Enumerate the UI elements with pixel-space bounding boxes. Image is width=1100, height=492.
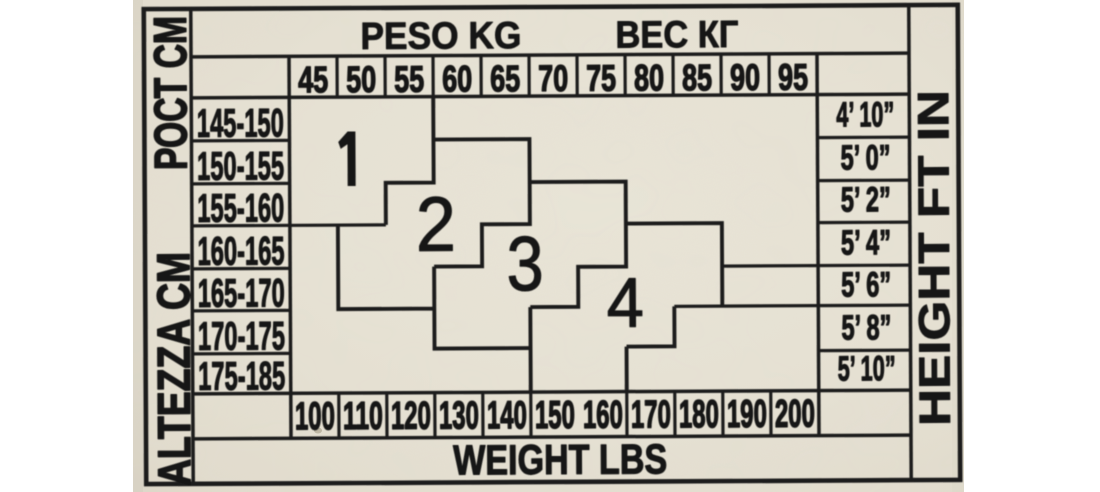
svg-text:70: 70: [538, 58, 568, 99]
svg-text:60: 60: [442, 58, 472, 99]
svg-text:155-160: 155-160: [197, 186, 284, 230]
svg-text:5’ 6”: 5’ 6”: [841, 265, 891, 304]
svg-text:150: 150: [535, 394, 575, 437]
svg-text:PESO KG: PESO KG: [360, 15, 521, 58]
svg-text:5’ 8”: 5’ 8”: [841, 308, 891, 347]
svg-text:160-165: 160-165: [197, 229, 284, 273]
svg-text:WEIGHT LBS: WEIGHT LBS: [453, 435, 667, 483]
svg-text:110: 110: [343, 395, 383, 438]
svg-text:150-155: 150-155: [197, 144, 284, 188]
svg-text:4’ 10”: 4’ 10”: [836, 95, 894, 134]
svg-text:РОСТ CM: РОСТ CM: [144, 16, 197, 170]
svg-text:175-185: 175-185: [198, 354, 285, 398]
svg-text:200: 200: [775, 393, 815, 436]
svg-text:95: 95: [778, 57, 808, 98]
svg-text:190: 190: [727, 393, 767, 436]
svg-text:145-150: 145-150: [197, 101, 284, 145]
svg-text:80: 80: [634, 57, 664, 98]
svg-text:50: 50: [346, 59, 376, 100]
svg-text:2: 2: [416, 181, 456, 267]
svg-text:65: 65: [490, 58, 520, 99]
svg-text:100: 100: [295, 395, 335, 438]
svg-text:3: 3: [506, 221, 543, 307]
svg-text:5’ 2”: 5’ 2”: [841, 180, 891, 219]
svg-text:170: 170: [631, 393, 671, 436]
svg-text:130: 130: [439, 394, 479, 437]
svg-text:ВЕС КГ: ВЕС КГ: [615, 14, 738, 57]
svg-text:45: 45: [298, 59, 328, 100]
svg-text:5’ 0”: 5’ 0”: [840, 138, 890, 177]
svg-text:180: 180: [679, 393, 719, 436]
svg-text:75: 75: [586, 58, 616, 99]
svg-text:170-175: 170-175: [198, 314, 285, 358]
svg-text:5’ 10”: 5’ 10”: [838, 349, 896, 388]
svg-text:HEIGHT FT IN: HEIGHT FT IN: [909, 90, 960, 426]
svg-text:4: 4: [607, 264, 644, 342]
svg-text:160: 160: [583, 394, 623, 437]
svg-text:120: 120: [391, 395, 431, 438]
svg-text:165-170: 165-170: [198, 271, 285, 315]
svg-text:140: 140: [487, 394, 527, 437]
svg-text:85: 85: [682, 57, 712, 98]
svg-text:ALTEZZA CM: ALTEZZA CM: [147, 252, 200, 486]
svg-text:90: 90: [730, 57, 760, 98]
svg-text:55: 55: [394, 59, 424, 100]
svg-text:5’ 4”: 5’ 4”: [841, 223, 891, 262]
